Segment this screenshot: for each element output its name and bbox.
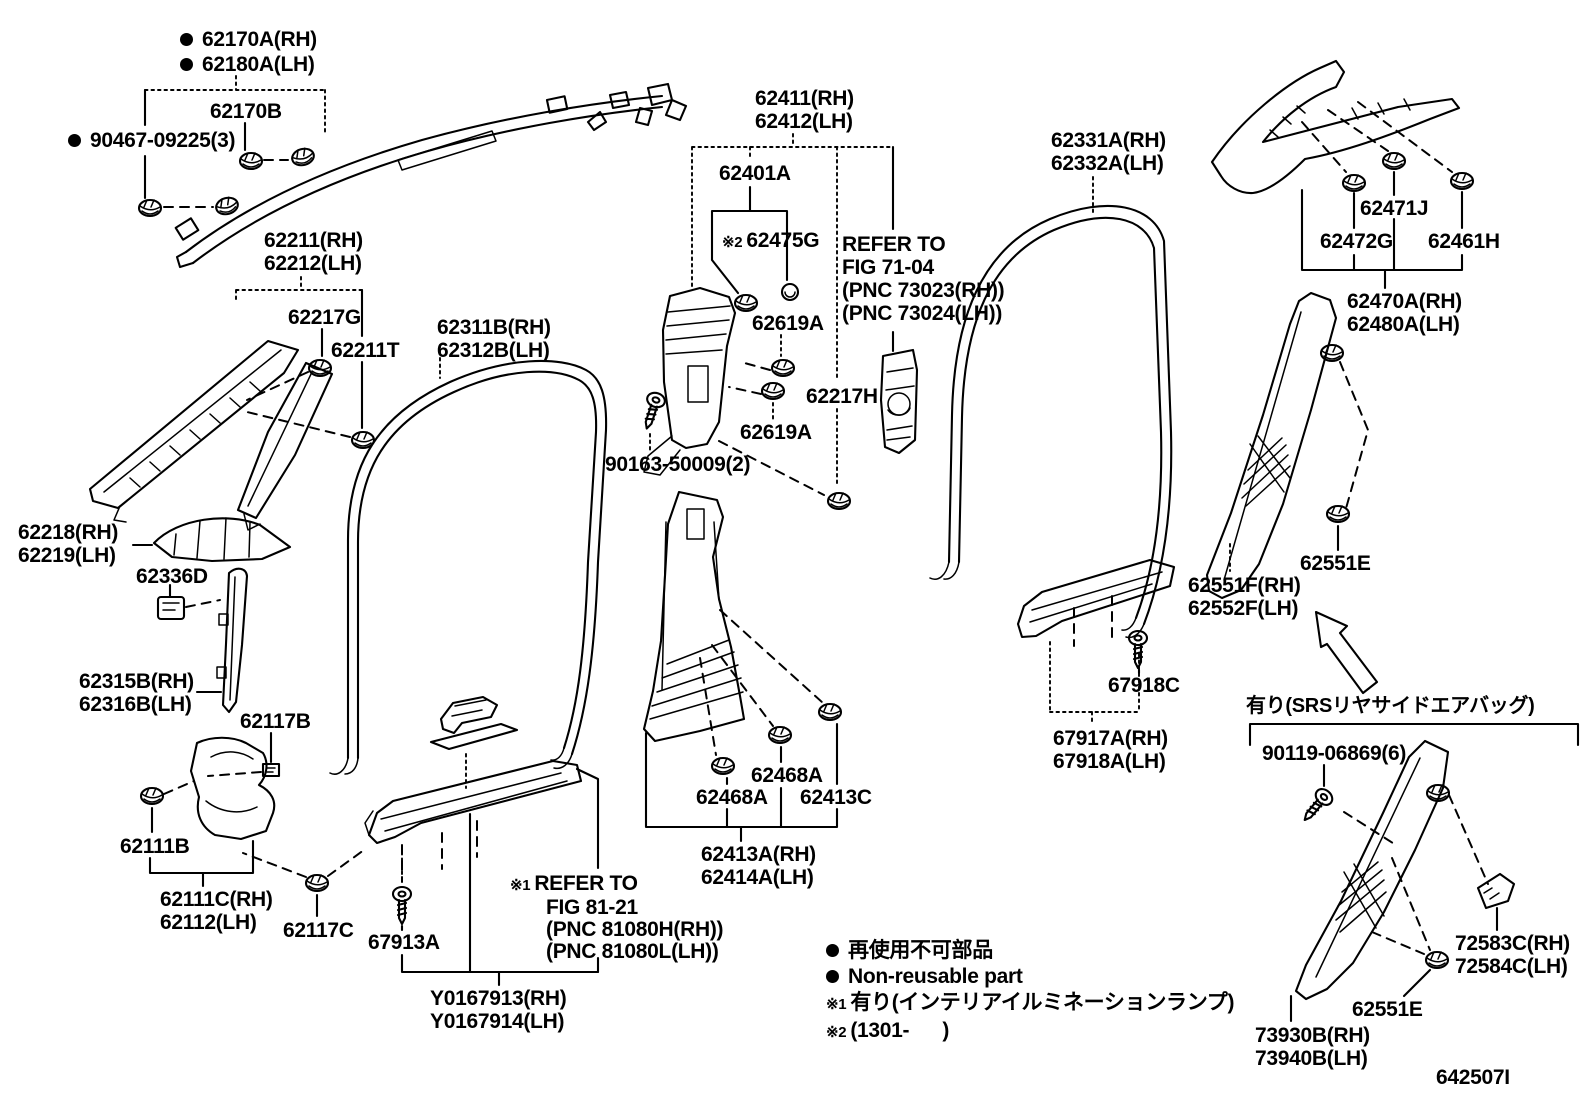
part-label-62551E-lower: 62551E [1352,998,1423,1021]
part-number-text: 62551E [1300,552,1371,575]
part-number-text: 62180A(LH) [202,53,315,76]
part-label-67917A: 67917A(RH)67918A(LH) [1053,727,1168,773]
part-label-62411: 62411(RH)62412(LH) [755,87,854,133]
part-number-text: 62111B [120,835,189,858]
part-label-62331A: 62331A(RH)62332A(LH) [1051,129,1166,175]
part-number-text: 62413A(RH) [701,843,816,866]
part-label-62170B: 62170B [210,100,282,123]
part-number-text: (PNC 81080L(LH)) [546,940,719,963]
part-number-text: 有り(インテリアイルミネーションランプ) [850,991,1234,1014]
part-number-text: 62117B [240,710,311,733]
part-number-text: 62461H [1428,230,1500,253]
part-number-text: 642507I [1436,1066,1510,1089]
part-label-62551E-upper: 62551E [1300,552,1371,575]
part-number-text: 62619A [740,421,812,444]
part-number-text: 62412(LH) [755,110,853,133]
part-number-text: 62480A(LH) [1347,313,1460,336]
part-number-text: 62112(LH) [160,911,257,934]
part-number-text: 62212(LH) [264,252,362,275]
part-label-62470A: 62470A(RH)62480A(LH) [1347,290,1462,336]
non-reusable-part-icon [68,134,81,147]
part-number-text: 67918A(LH) [1053,750,1166,773]
part-number-text: 62111C(RH) [160,888,273,911]
part-label-62211: 62211(RH)62212(LH) [264,229,363,275]
part-label-Y0167913: Y0167913(RH)Y0167914(LH) [430,987,566,1033]
part-label-62111C: 62111C(RH)62112(LH) [160,888,273,934]
part-number-text: 62471J [1360,197,1428,220]
part-label-62117B: 62117B [240,710,311,733]
parts-diagram-canvas: 62170A(RH)62180A(LH)62170B90467-09225(3)… [0,0,1592,1099]
part-number-text: 62414A(LH) [701,866,814,889]
part-number-text: 62551E [1352,998,1423,1021]
part-label-67913A: 67913A [368,931,440,954]
part-number-text: 73940B(LH) [1255,1047,1368,1070]
part-label-62211T: 62211T [331,339,399,362]
part-label-90119-06869: 90119-06869(6) [1262,742,1406,765]
part-number-text: 67913A [368,931,440,954]
part-label-62413A: 62413A(RH)62414A(LH) [701,843,816,889]
part-label-62217G: 62217G [288,306,361,329]
part-number-text: 62336D [136,565,208,588]
part-number-text: 62316B(LH) [79,693,192,716]
part-number-text: REFER TO [842,233,945,256]
part-label-62475G: ※262475G [722,229,819,254]
part-number-text: Non-reusable part [848,965,1023,988]
part-label-62336D: 62336D [136,565,208,588]
part-number-text: 62413C [800,786,872,809]
part-number-text: FIG 81-21 [546,896,638,919]
part-number-text: 62315B(RH) [79,670,194,693]
part-label-refer-fig-81-21: ※1REFER TOFIG 81-21(PNC 81080H(RH))(PNC … [510,873,723,963]
part-number-text: 有り(SRSリヤサイドエアバッグ) [1246,695,1535,717]
part-number-text: (PNC 73023(RH)) [842,279,1004,302]
part-label-62217H: 62217H [806,385,878,408]
part-number-text: 62331A(RH) [1051,129,1166,152]
a-pillar-garnish-leaders [236,277,374,448]
part-number-text: 62219(LH) [18,544,116,567]
part-label-62551F: 62551F(RH)62552F(LH) [1188,574,1301,620]
part-number-text: 62170A(RH) [202,28,317,51]
part-number-text: 62217H [806,385,878,408]
part-label-legend: 再使用不可部品Non-reusable part※1有り(インテリアイルミネーシ… [826,938,1234,1046]
non-reusable-part-icon [180,33,193,46]
non-reusable-part-icon [180,58,193,71]
part-label-62413C: 62413C [800,786,872,809]
part-label-62468A-lower: 62468A [696,786,768,809]
part-label-refer-fig-71-04: REFER TOFIG 71-04(PNC 73023(RH))(PNC 730… [842,233,1004,325]
part-number-text: 62475G [746,229,819,252]
part-label-62619A-lower: 62619A [740,421,812,444]
part-label-72583C: 72583C(RH)72584C(LH) [1455,932,1570,978]
part-number-text: 62311B(RH) [437,316,551,339]
footnote-mark: ※2 [722,234,742,251]
part-number-text: 62218(RH) [18,521,118,544]
b-pillar-lock-striker-trim-drawing [881,350,917,453]
part-label-62117C: 62117C [283,919,354,942]
part-number-text: 62468A [696,786,768,809]
part-label-62315B: 62315B(RH)62316B(LH) [79,670,194,716]
non-reusable-part-icon [826,944,839,957]
part-number-text: 72584C(LH) [1455,955,1568,978]
part-label-62468A-upper: 62468A [751,764,823,787]
part-label-90467-09225: 90467-09225(3) [68,129,235,152]
footnote-mark: ※1 [826,996,846,1013]
part-number-text: (1301- ) [850,1019,949,1042]
part-label-62472G: 62472G [1320,230,1393,253]
part-number-text: 73930B(RH) [1255,1024,1370,1047]
part-number-text: 62468A [751,764,823,787]
footnote-mark: ※1 [510,877,530,894]
part-number-text: 90467-09225(3) [90,129,235,152]
part-label-curtain-airbag: 62170A(RH)62180A(LH) [180,27,317,77]
non-reusable-part-icon [826,970,839,983]
part-number-text: 72583C(RH) [1455,932,1570,955]
part-number-text: 62401A [719,162,791,185]
part-number-text: 62619A [752,312,824,335]
quarter-pillar-garnish-drawing [1212,61,1473,288]
part-label-62471J: 62471J [1360,197,1428,220]
part-number-text: 90163-50009(2) [605,453,750,476]
part-number-text: 90119-06869(6) [1262,742,1406,765]
direction-arrow [1316,612,1377,693]
front-door-weatherstrip-drawing [330,345,606,774]
part-number-text: 67917A(RH) [1053,727,1168,750]
part-label-62619A-upper: 62619A [752,312,824,335]
part-number-text: 62211T [331,339,399,362]
part-number-text: 62552F(LH) [1188,597,1298,620]
part-label-srs-airbag-note: 有り(SRSリヤサイドエアバッグ) [1246,695,1535,718]
part-number-text: 再使用不可部品 [848,939,993,962]
part-label-figure-code: 642507I [1436,1066,1510,1089]
part-number-text: 62312B(LH) [437,339,550,362]
a-pillar-garnish-drawing [90,341,332,530]
part-label-62311B: 62311B(RH)62312B(LH) [437,316,551,362]
part-label-73930B: 73930B(RH)73940B(LH) [1255,1024,1370,1070]
part-number-text: 62170B [210,100,282,123]
part-number-text: 62217G [288,306,361,329]
part-number-text: 62117C [283,919,354,942]
diagram-line-art [0,0,1592,1099]
part-number-text: 62470A(RH) [1347,290,1462,313]
part-number-text: 62472G [1320,230,1393,253]
part-number-text: REFER TO [534,872,637,895]
part-number-text: FIG 71-04 [842,256,934,279]
part-number-text: (PNC 73024(LH)) [842,302,1002,325]
rear-scuff-plate-drawing [1018,560,1174,724]
part-number-text: 62332A(LH) [1051,152,1164,175]
part-label-62461H: 62461H [1428,230,1500,253]
part-number-text: 62411(RH) [755,87,854,110]
part-number-text: (PNC 81080H(RH)) [546,918,723,941]
part-number-text: 62211(RH) [264,229,363,252]
part-number-text: Y0167914(LH) [430,1010,564,1033]
part-label-90163-50009: 90163-50009(2) [605,453,750,476]
part-number-text: Y0167913(RH) [430,987,566,1010]
part-label-62401A: 62401A [719,162,791,185]
part-number-text: 62551F(RH) [1188,574,1301,597]
part-label-62218: 62218(RH)62219(LH) [18,521,118,567]
footnote-mark: ※2 [826,1024,846,1041]
part-number-text: 67918C [1108,674,1180,697]
part-label-67918C: 67918C [1108,674,1180,697]
b-pillar-upper-trim-drawing [644,288,735,475]
part-label-62111B: 62111B [120,835,189,858]
